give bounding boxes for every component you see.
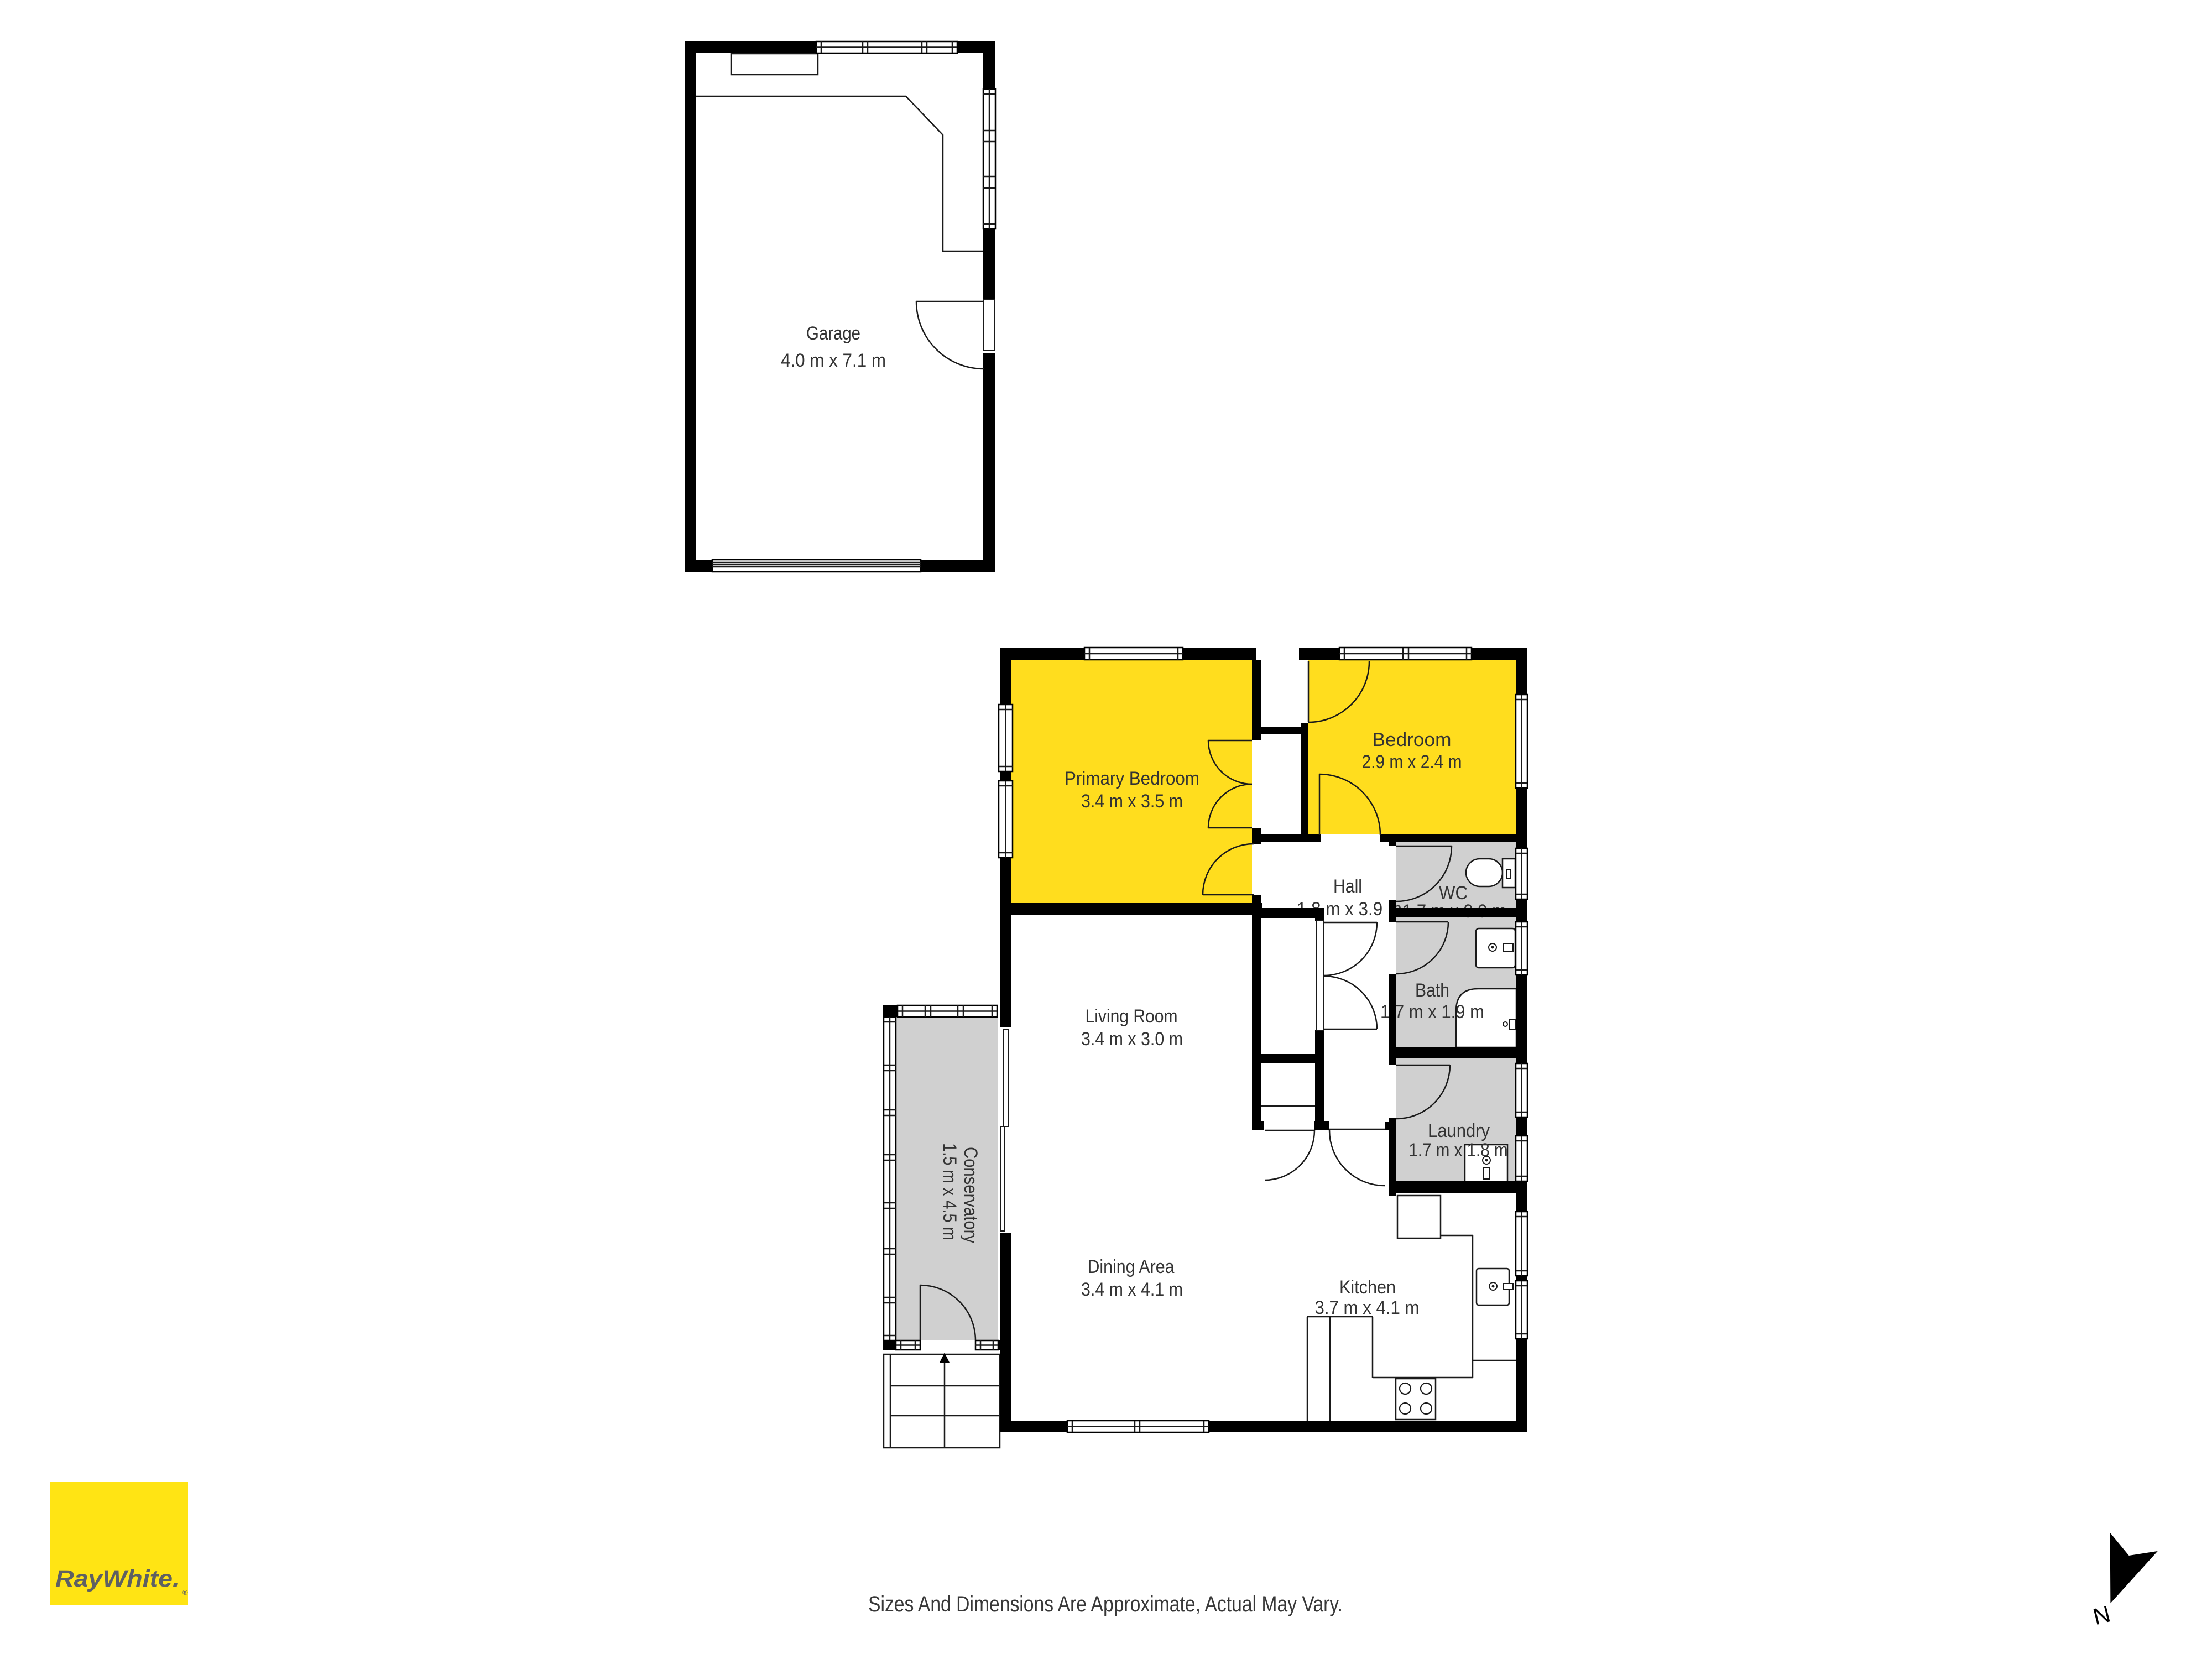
svg-text:3.7 m x 4.1 m: 3.7 m x 4.1 m <box>1315 1297 1420 1318</box>
svg-text:3.4 m x 4.1 m: 3.4 m x 4.1 m <box>1081 1279 1183 1300</box>
svg-text:Hall: Hall <box>1333 876 1362 897</box>
svg-text:Garage: Garage <box>806 323 860 344</box>
svg-text:4.0 m x 7.1 m: 4.0 m x 7.1 m <box>781 350 886 371</box>
svg-text:RayWhite.: RayWhite. <box>55 1566 180 1592</box>
svg-text:Conservatory: Conservatory <box>960 1147 981 1243</box>
svg-text:Laundry: Laundry <box>1428 1120 1490 1141</box>
svg-text:Primary Bedroom: Primary Bedroom <box>1065 768 1199 789</box>
svg-text:®: ® <box>182 1588 188 1597</box>
svg-text:Sizes And Dimensions Are Appro: Sizes And Dimensions Are Approximate, Ac… <box>868 1592 1343 1616</box>
svg-text:Kitchen: Kitchen <box>1339 1277 1396 1298</box>
svg-text:1.7 m x 1.8 m: 1.7 m x 1.8 m <box>1409 1140 1508 1161</box>
svg-text:Bath: Bath <box>1415 980 1449 1001</box>
svg-text:2.9 m x 2.4 m: 2.9 m x 2.4 m <box>1362 752 1462 773</box>
svg-text:3.4 m x 3.5 m: 3.4 m x 3.5 m <box>1081 791 1183 812</box>
svg-text:3.4 m x 3.0 m: 3.4 m x 3.0 m <box>1081 1029 1183 1050</box>
svg-text:1.5 m x 4.5 m: 1.5 m x 4.5 m <box>939 1143 960 1240</box>
svg-text:Living Room: Living Room <box>1086 1006 1178 1027</box>
svg-text:Bedroom: Bedroom <box>1373 729 1452 750</box>
svg-text:Dining Area: Dining Area <box>1088 1256 1175 1277</box>
